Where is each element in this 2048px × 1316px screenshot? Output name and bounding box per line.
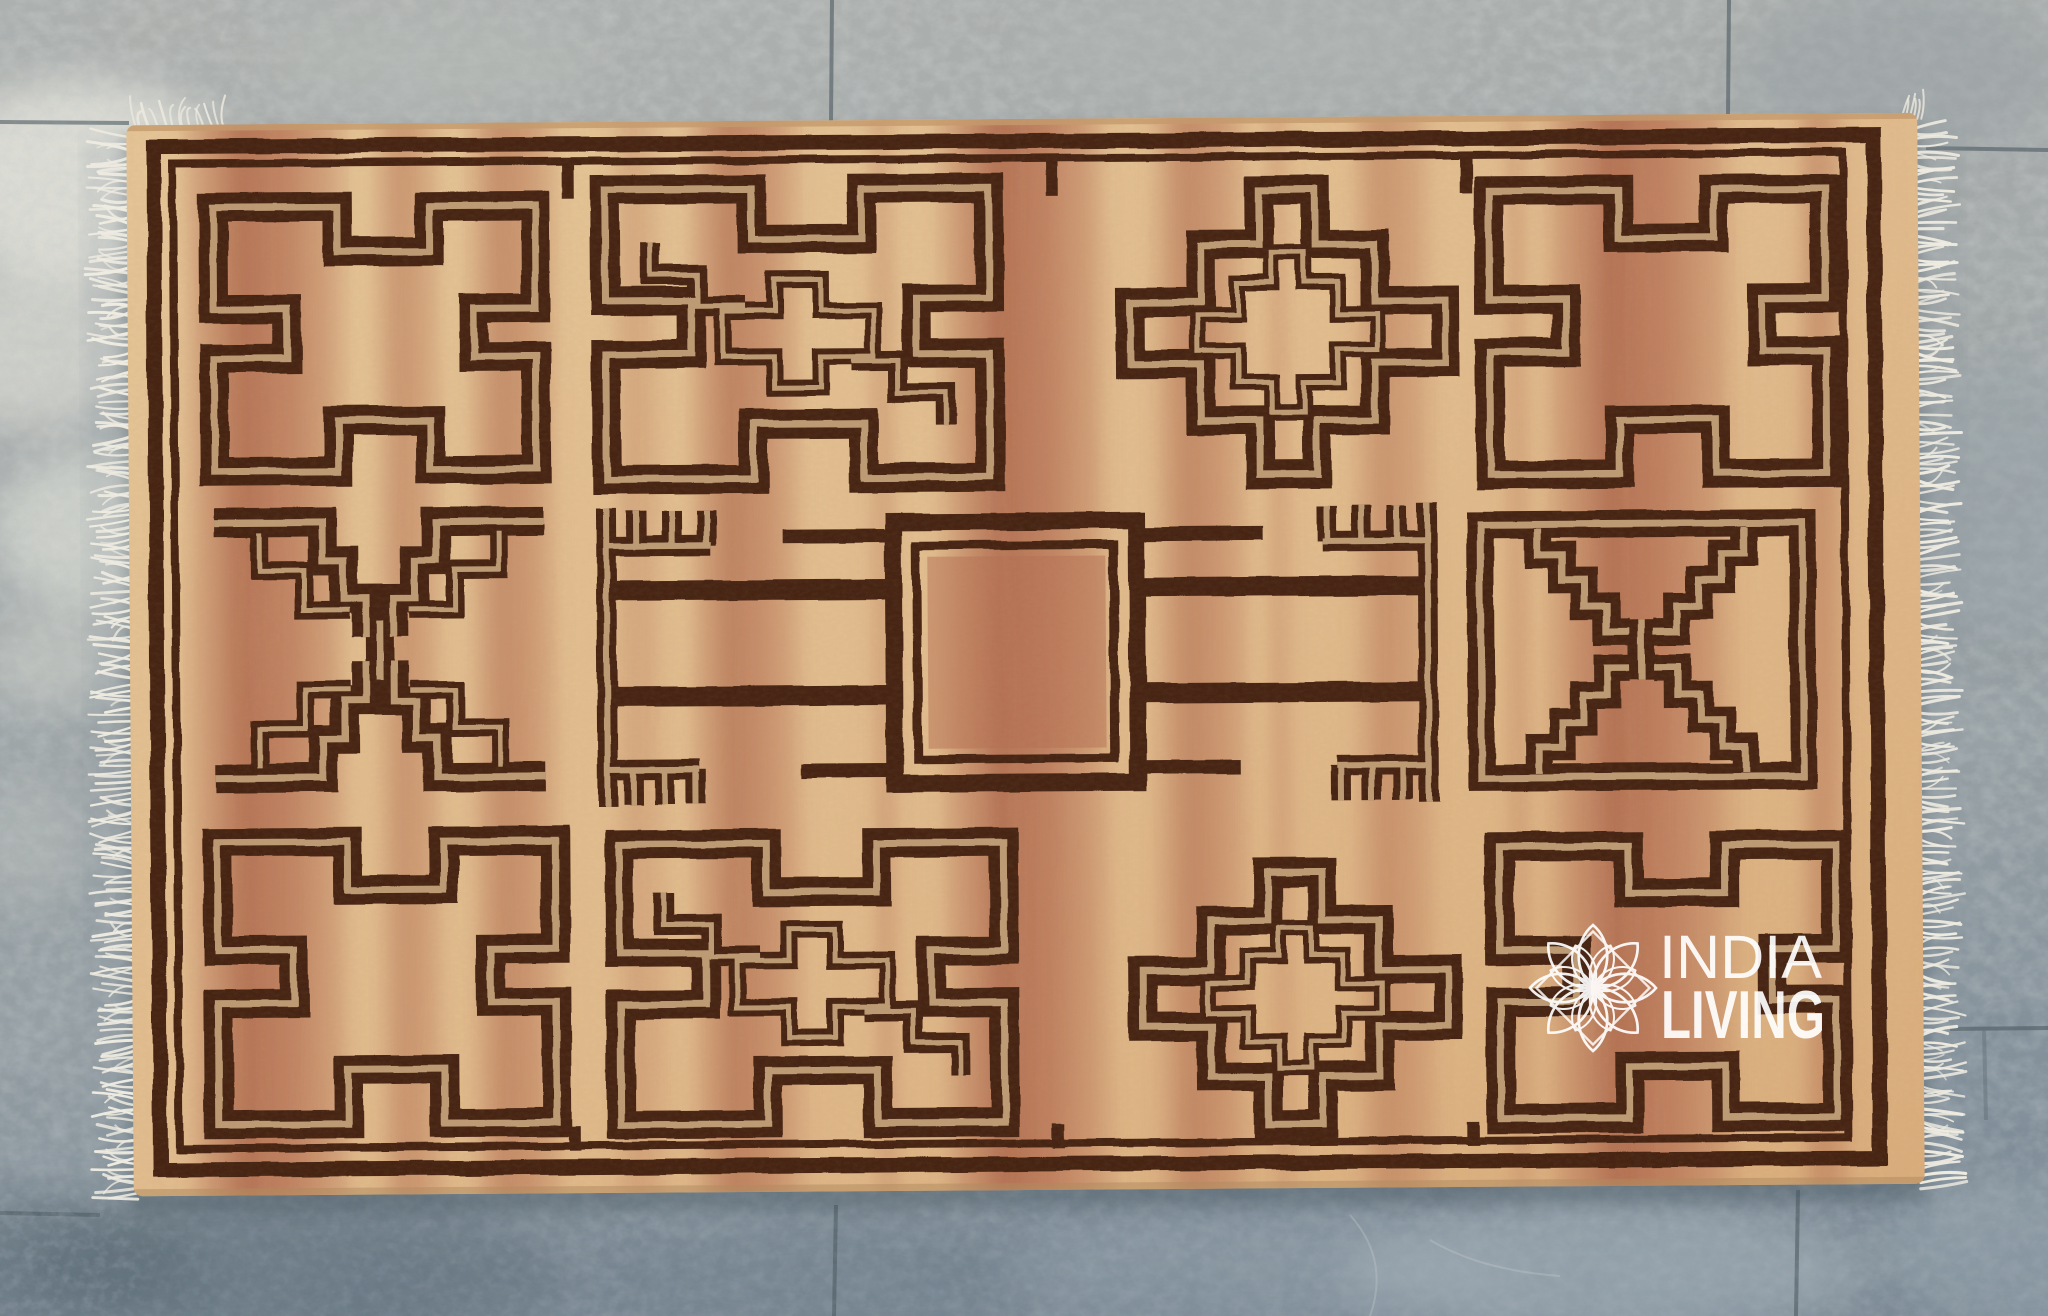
svg-text:LIVING: LIVING [1661,977,1825,1053]
